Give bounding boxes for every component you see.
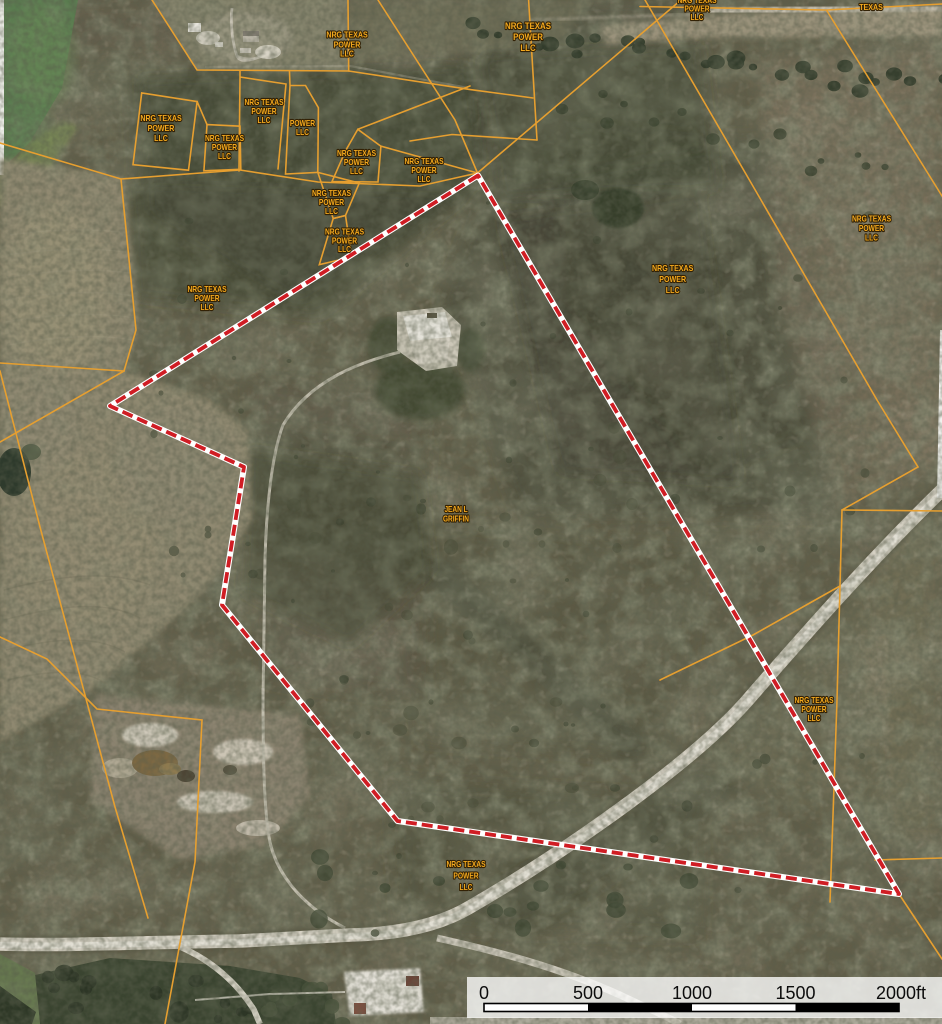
svg-text:POWER: POWER — [453, 871, 479, 881]
svg-text:LLC: LLC — [417, 174, 431, 184]
svg-text:POWER: POWER — [659, 274, 686, 284]
svg-text:LLC: LLC — [666, 285, 680, 295]
svg-text:LLC: LLC — [865, 233, 879, 243]
svg-text:POWER: POWER — [859, 223, 885, 233]
svg-text:POWER: POWER — [513, 31, 543, 42]
svg-text:LLC: LLC — [218, 151, 232, 161]
svg-text:NRG TEXAS: NRG TEXAS — [852, 214, 891, 224]
svg-text:LLC: LLC — [350, 166, 364, 176]
svg-text:LLC: LLC — [325, 206, 339, 216]
svg-text:LLC: LLC — [338, 244, 352, 254]
svg-text:NRG TEXAS: NRG TEXAS — [326, 30, 367, 40]
svg-text:NRG TEXAS: NRG TEXAS — [505, 20, 551, 31]
svg-text:NRG TEXAS: NRG TEXAS — [652, 263, 693, 273]
svg-text:LLC: LLC — [690, 12, 704, 22]
svg-text:0: 0 — [479, 983, 489, 1003]
svg-text:1000: 1000 — [672, 983, 712, 1003]
svg-text:LLC: LLC — [520, 42, 536, 53]
svg-text:LLC: LLC — [200, 302, 214, 312]
svg-text:NRG TEXAS: NRG TEXAS — [446, 859, 485, 869]
svg-text:1500: 1500 — [775, 983, 815, 1003]
svg-text:2000ft: 2000ft — [876, 983, 926, 1003]
svg-text:LLC: LLC — [459, 882, 473, 892]
svg-text:TEXAS: TEXAS — [859, 2, 883, 12]
svg-text:LLC: LLC — [296, 127, 310, 137]
svg-text:LLC: LLC — [257, 115, 271, 125]
svg-text:500: 500 — [573, 983, 603, 1003]
svg-text:LLC: LLC — [154, 133, 168, 143]
svg-text:NRG TEXAS: NRG TEXAS — [140, 113, 181, 123]
svg-text:JEAN L: JEAN L — [444, 504, 468, 514]
svg-text:LLC: LLC — [340, 49, 354, 59]
svg-text:LLC: LLC — [807, 713, 821, 723]
svg-text:POWER: POWER — [148, 123, 175, 133]
svg-text:GRIFFIN: GRIFFIN — [443, 514, 469, 524]
